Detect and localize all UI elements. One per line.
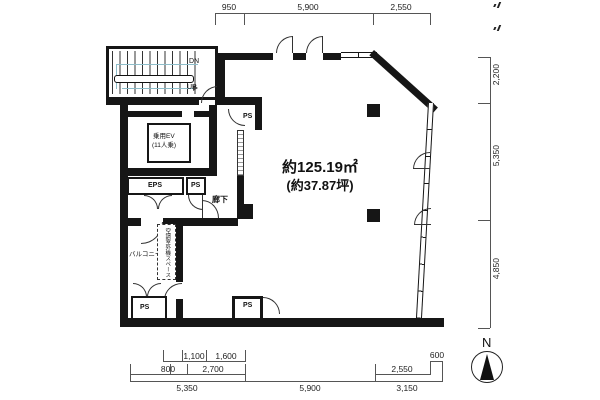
door-arc — [188, 195, 203, 210]
window-divider — [358, 52, 359, 58]
dim-line-top — [215, 13, 430, 14]
eps-label: EPS — [148, 182, 162, 189]
ps-bottom-left-label: PS — [140, 304, 149, 311]
door-arc — [413, 152, 430, 169]
pillar — [367, 104, 380, 117]
dim-tick — [442, 371, 443, 382]
floor-plan: 950 5,900 2,550 2,200 5,350 4,850 1,100 … — [0, 0, 600, 400]
stray-mark — [497, 2, 501, 8]
dim-bottom-2550: 2,550 — [391, 365, 412, 374]
dim-tick — [478, 328, 490, 329]
dim-top-2550: 2,550 — [390, 3, 411, 12]
dim-tick — [163, 350, 164, 362]
elevator-label: 乗用EV — [153, 134, 175, 141]
door-leaf — [322, 36, 323, 53]
dim-tick — [206, 350, 207, 362]
dim-tick — [245, 371, 246, 382]
door-arc — [414, 208, 431, 225]
wall-lobby-top — [106, 97, 199, 105]
wall-ev-top — [120, 111, 182, 117]
door-leaf — [414, 224, 431, 225]
stair-handrail — [114, 75, 194, 83]
elevator-capacity-label: (11人乗) — [152, 143, 176, 150]
ac-outdoor-unit-label: 空調室外機スペース — [164, 228, 170, 278]
stairs-dn-label: DN — [189, 58, 199, 65]
pillar — [367, 209, 380, 222]
wall-top — [293, 53, 306, 60]
dim-tick — [430, 13, 431, 25]
wall-left — [120, 100, 128, 327]
dim-tick — [373, 13, 374, 25]
dim-bottom-3150: 3,150 — [396, 384, 417, 393]
wall-corridor-bottom — [127, 218, 141, 226]
stair-path-line — [116, 64, 198, 65]
stray-mark — [497, 25, 501, 31]
compass-needle-icon — [480, 354, 494, 380]
dim-right-5350: 5,350 — [492, 145, 501, 166]
dim-bottom-1100: 1,100 — [183, 352, 204, 361]
area-tsubo-label: (約37.87坪) — [246, 178, 394, 194]
door-arc — [144, 195, 158, 209]
compass-north-label: N — [482, 336, 491, 349]
dim-tick — [478, 57, 490, 58]
dim-tick — [130, 371, 131, 382]
wall-stub-column — [237, 204, 253, 219]
dim-tick — [245, 350, 246, 362]
wall-ps-right — [255, 97, 262, 130]
ps-mid-label: PS — [191, 182, 200, 189]
dim-tick — [478, 103, 490, 104]
dim-bottom-1600: 1,600 — [215, 352, 236, 361]
partition-hatch — [237, 130, 244, 176]
door-arc — [276, 36, 293, 53]
dim-line — [375, 374, 430, 375]
wall-balcony-right — [176, 218, 183, 282]
wall-top — [323, 53, 341, 60]
dim-bottom-5350: 5,350 — [176, 384, 197, 393]
ps-bottom-center-label: PS — [243, 302, 252, 309]
stairs-up-label: UP — [187, 84, 197, 91]
dim-right-4850: 4,850 — [492, 258, 501, 279]
dim-tick — [187, 364, 188, 375]
dim-tick — [244, 13, 245, 25]
area-sqm-label: 約125.19㎡ — [246, 159, 394, 178]
dim-bottom-800: 800 — [161, 365, 175, 374]
dim-tick — [375, 371, 376, 382]
corridor-label: 廊下 — [212, 196, 228, 204]
dim-tick — [478, 220, 490, 221]
door-arc — [147, 283, 161, 297]
ac-outdoor-unit-space: 空調室外機スペース — [157, 224, 176, 280]
dim-tick — [430, 364, 431, 375]
door-arc — [263, 297, 280, 314]
dim-right-2200: 2,200 — [492, 64, 501, 85]
dim-bottom-2700: 2,700 — [202, 365, 223, 374]
wall-ev-right — [209, 105, 217, 175]
dim-line-right — [490, 57, 491, 328]
dim-bottom-5900: 5,900 — [299, 384, 320, 393]
wall-below-partition — [237, 176, 244, 206]
stair-path-line — [122, 88, 196, 89]
wall-bottom — [120, 318, 444, 327]
wall-balcony-right — [176, 299, 183, 319]
door-leaf — [413, 168, 430, 169]
door-arc — [133, 283, 147, 297]
wall-top — [217, 53, 273, 60]
door-arc — [306, 36, 323, 53]
dim-tick — [215, 13, 216, 25]
door-leaf — [292, 36, 293, 53]
door-arc — [158, 195, 172, 209]
dim-line — [163, 361, 245, 362]
dim-top-950: 950 — [222, 3, 236, 12]
dim-line — [130, 381, 443, 382]
dim-bottom-600: 600 — [430, 351, 444, 360]
wall-ev-bottom — [120, 168, 217, 176]
area-label: 約125.19㎡ (約37.87坪) — [246, 159, 394, 194]
door-arc — [228, 109, 245, 126]
dim-top-5900: 5,900 — [297, 3, 318, 12]
